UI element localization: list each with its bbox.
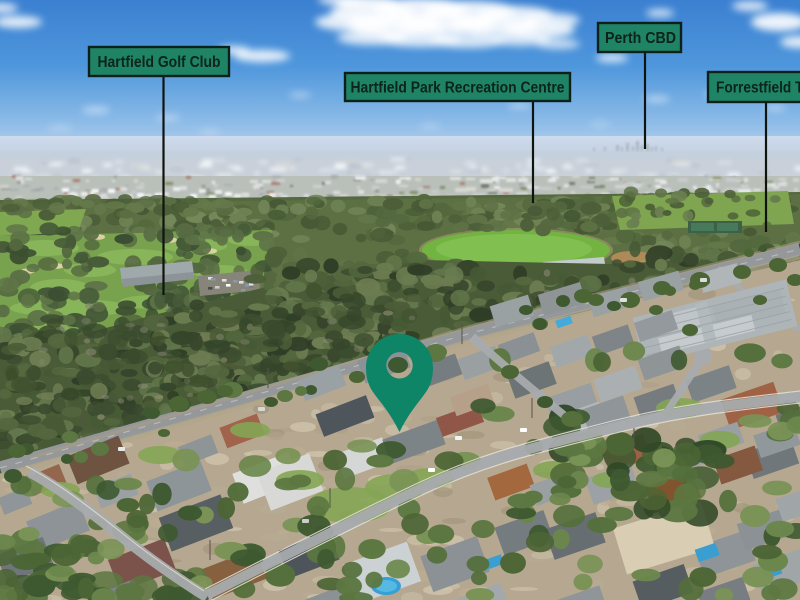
svg-text:Perth CBD: Perth CBD	[605, 30, 676, 47]
svg-text:Forrestfield Train Station: Forrestfield Train Station	[716, 80, 800, 97]
svg-text:Hartfield Park Recreation Cent: Hartfield Park Recreation Centre	[351, 80, 565, 97]
svg-text:Hartfield Golf Club: Hartfield Golf Club	[98, 54, 221, 71]
